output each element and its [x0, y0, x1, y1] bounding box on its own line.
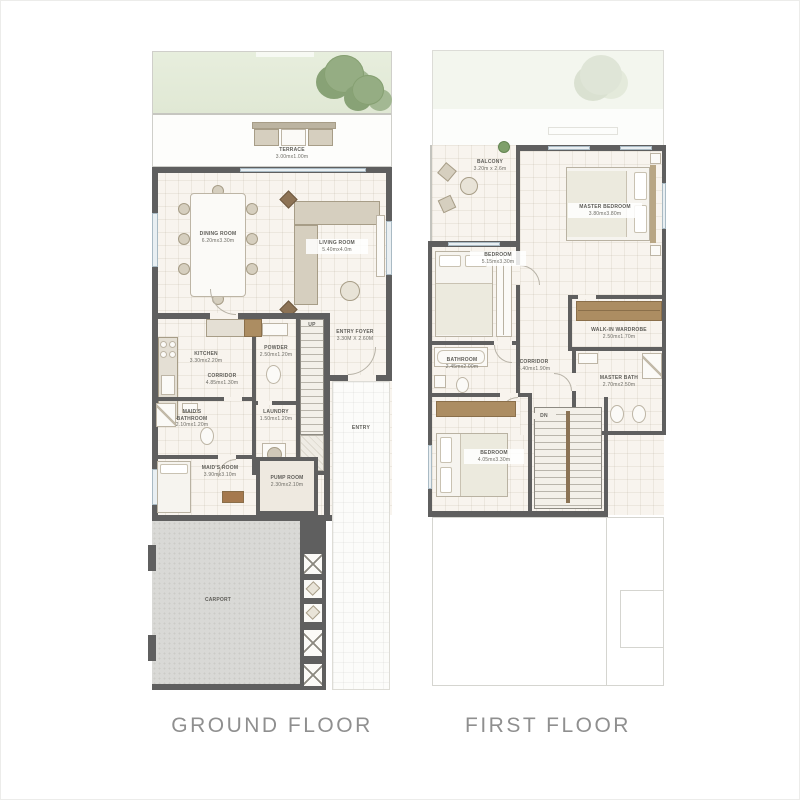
doormat: [222, 491, 244, 503]
room-dims: 2.45mx2.00m: [436, 364, 488, 371]
room-dims: 3.30M X 2.60M: [326, 336, 384, 343]
window: [548, 146, 590, 150]
toilet: [266, 365, 281, 384]
wall: [148, 635, 156, 661]
room-label-bedroom-back: BEDROOM 4.05mx3.30m: [464, 449, 524, 464]
door-opening: [224, 397, 242, 401]
room-label-entry-foyer: ENTRY FOYER 3.30M X 2.60M: [326, 329, 384, 342]
room-dims: 2.50mx1.70m: [576, 334, 662, 341]
room-name: MASTER BATH: [600, 375, 638, 381]
room-dims: 4.05mx3.30m: [464, 457, 524, 464]
dining-table: [190, 193, 246, 297]
ghost-tree-icon: [580, 55, 622, 95]
stairs-down-label: DN: [532, 413, 556, 419]
room-name: CARPORT: [205, 597, 231, 603]
bathroom-sink: [434, 375, 446, 388]
sofa: [294, 225, 318, 305]
blanket: [460, 434, 507, 496]
roof-notch: [620, 590, 664, 648]
room-name: CORRIDOR: [520, 359, 549, 365]
room-dims: 5.15mx3.30m: [470, 259, 526, 266]
terrace-sofa-back: [252, 122, 336, 129]
wall: [152, 684, 324, 690]
room-label-maids-bathroom: MAID'S BATHROOM 2.10mx1.20m: [168, 409, 216, 429]
electrical-box: [303, 553, 323, 575]
ghost-garden: [433, 51, 663, 109]
stove-burner: [169, 341, 176, 348]
electrical-box: [303, 663, 323, 687]
dining-chair: [246, 263, 258, 275]
terrace-sofa-seat: [281, 129, 306, 146]
room-name: CORRIDOR: [208, 373, 237, 379]
room-dims: 3.90mx3.10m: [190, 472, 250, 479]
toilet: [456, 377, 469, 393]
wall: [324, 313, 330, 515]
wall: [148, 545, 156, 571]
room-label-kitchen: KITCHEN 3.30mx2.20m: [180, 351, 232, 364]
room-dims: 3.80mx3.80m: [568, 211, 642, 218]
plant-icon: [498, 141, 510, 153]
side-table: [340, 281, 360, 301]
room-name: MASTER BEDROOM: [579, 204, 630, 210]
room-dims: 2.50mx1.20m: [255, 352, 297, 359]
stove-burner: [169, 351, 176, 358]
garden-gate: [256, 52, 314, 57]
wall: [568, 347, 666, 351]
ground-floor-title: GROUND FLOOR: [148, 714, 396, 738]
pillow: [160, 464, 188, 474]
toilet: [610, 405, 624, 423]
first-floor-plan: BALCONY 3.20m x 2.6m BEDROOM 5.15mx3.30m…: [428, 45, 668, 690]
room-dims: 2.70mx2.50m: [586, 382, 652, 389]
terrace-sofa-seat: [308, 129, 333, 146]
window: [152, 213, 158, 267]
window: [240, 168, 366, 172]
door-opening: [578, 295, 596, 299]
dining-chair: [178, 203, 190, 215]
room-label-corridor-first: CORRIDOR 3.40mx1.90m: [506, 359, 562, 372]
room-dims: 1.50mx1.20m: [253, 416, 299, 423]
wardrobe-cabinets: [576, 301, 662, 321]
room-name: MAID'S BATHROOM: [177, 409, 208, 422]
window: [620, 146, 652, 150]
room-name: BEDROOM: [480, 450, 508, 456]
window: [448, 242, 500, 246]
door-opening: [258, 401, 272, 405]
room-label-terrace: TERRACE 3.00mx1.00m: [262, 147, 322, 160]
room-name: POWDER: [264, 345, 288, 351]
room-dims: 3.20m x 2.6m: [462, 166, 518, 173]
room-name: DINING ROOM: [200, 231, 237, 237]
nightstand: [650, 245, 661, 256]
room-name: BALCONY: [477, 159, 503, 165]
powder-sink: [262, 323, 288, 336]
terrace-sofa-seat: [254, 129, 279, 146]
room-name: PUMP ROOM: [270, 475, 303, 481]
blanket: [436, 283, 492, 335]
room-label-powder: POWDER 2.50mx1.20m: [255, 345, 297, 358]
room-label-bedroom-front: BEDROOM 5.15mx3.30m: [470, 251, 526, 266]
room-label-maids-room: MAID'S ROOM 3.90mx3.10m: [190, 465, 250, 478]
bathroom-sink: [578, 353, 598, 364]
room-dims: 3.40mx1.90m: [506, 366, 562, 373]
door-opening: [572, 373, 576, 391]
room-label-carport: CARPORT: [188, 597, 248, 604]
room-label-master-bedroom: MASTER BEDROOM 3.80mx3.80m: [568, 203, 642, 218]
dining-chair: [178, 263, 190, 275]
tree-icon: [352, 75, 384, 105]
balcony-rail: [430, 145, 432, 245]
electrical-box: [303, 629, 323, 657]
entry-label: ENTRY: [336, 425, 386, 431]
wall: [516, 145, 520, 265]
room-label-pump-room: PUMP ROOM 2.30mx2.10m: [260, 475, 314, 488]
room-label-walk-in-wardrobe: WALK-IN WARDROBE 2.50mx1.70m: [576, 327, 662, 340]
stair-rail: [566, 411, 570, 503]
ghost-terrace-sofa: [548, 127, 618, 135]
sofa: [294, 201, 380, 225]
room-name: MAID'S ROOM: [202, 465, 238, 471]
pillow: [634, 172, 647, 200]
room-name: BATHROOM: [447, 357, 478, 363]
wall: [152, 455, 254, 459]
room-name: ENTRY FOYER: [336, 329, 373, 335]
pillow: [440, 437, 452, 463]
room-name: WALK-IN WARDROBE: [591, 327, 647, 333]
room-name: LIVING ROOM: [319, 240, 355, 246]
staircase-up: [300, 319, 324, 435]
dining-chair: [246, 203, 258, 215]
window: [386, 221, 392, 275]
room-label-bathroom: BATHROOM 2.45mx2.00m: [436, 357, 488, 370]
bidet: [632, 405, 646, 423]
garden-terrace-divider: [153, 113, 391, 115]
room-label-dining-room: DINING ROOM 6.20mx3.30m: [186, 231, 250, 244]
room-dims: 3.30mx2.20m: [180, 358, 232, 365]
tv-unit: [376, 215, 385, 277]
headboard: [650, 165, 656, 243]
room-name: LAUNDRY: [263, 409, 289, 415]
room-dims: 2.10mx1.20m: [168, 422, 216, 429]
room-dims: 6.20mx3.30m: [186, 238, 250, 245]
room-dims: 4.85mx1.30m: [194, 380, 250, 387]
wardrobe-shelf-lines: [578, 310, 660, 311]
room-label-master-bath: MASTER BATH 2.70mx2.50m: [586, 375, 652, 388]
kitchen-counter-wood: [244, 319, 262, 337]
stove-burner: [160, 341, 167, 348]
room-dims: 2.30mx2.10m: [260, 482, 314, 489]
room-name: KITCHEN: [194, 351, 218, 357]
room-dims: 5.40mx4.0m: [306, 247, 368, 254]
wall: [528, 393, 532, 515]
wall: [568, 295, 572, 351]
room-label-laundry: LAUNDRY 1.50mx1.20m: [253, 409, 299, 422]
stairs-up-label: UP: [296, 322, 328, 328]
pillow: [440, 467, 452, 493]
room-label-corridor-ground: CORRIDOR 4.85mx1.30m: [194, 373, 250, 386]
ground-floor-plan: TERRACE 3.00mx1.00m DINING ROOM 6.20mx3.…: [148, 45, 396, 690]
room-name: BEDROOM: [484, 252, 512, 258]
first-floor-title: FIRST FLOOR: [428, 714, 668, 738]
window: [428, 445, 432, 489]
room-label-balcony: BALCONY 3.20m x 2.6m: [462, 159, 518, 172]
wall: [604, 397, 608, 515]
room-dims: 3.00mx1.00m: [262, 154, 322, 161]
room-label-living-room: LIVING ROOM 5.40mx4.0m: [306, 239, 368, 254]
pillow: [439, 255, 461, 267]
nightstand: [650, 153, 661, 164]
roof-divider: [606, 517, 607, 686]
balcony-table: [460, 177, 478, 195]
room-name: TERRACE: [279, 147, 305, 153]
wardrobe-cabinets: [436, 401, 516, 417]
kitchen-sink: [161, 375, 175, 395]
stove-burner: [160, 351, 167, 358]
window: [662, 183, 666, 229]
toilet: [200, 427, 214, 445]
